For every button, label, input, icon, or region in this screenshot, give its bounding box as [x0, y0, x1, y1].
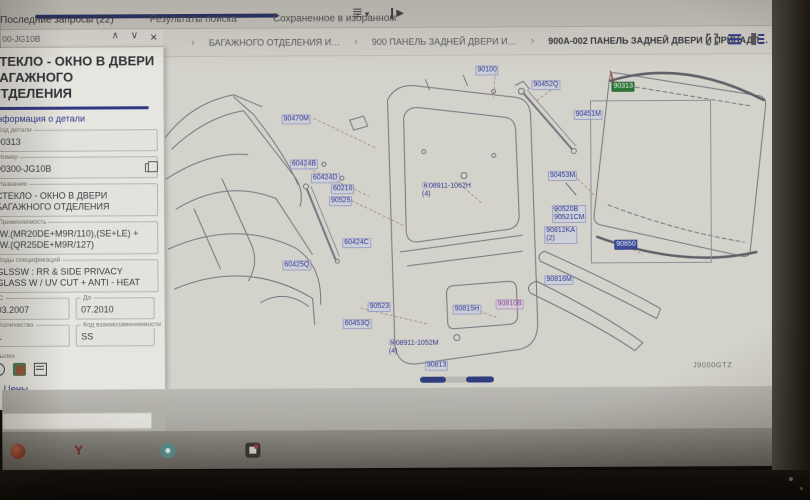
- part-label[interactable]: 90313: [611, 82, 635, 92]
- part-field: Код детали 90313: [0, 129, 158, 152]
- part-title: СТЕКЛО - ОКНО В ДВЕРИ БАГАЖНОГО ОТДЕЛЕНИ…: [0, 53, 158, 102]
- part-fields: Код детали 90313 Номер 90300-JG10B Назва…: [0, 129, 159, 347]
- list-icon[interactable]: [34, 363, 47, 376]
- copy-icon[interactable]: [145, 163, 153, 172]
- list-view-icon[interactable]: [728, 33, 741, 45]
- messenger-icon[interactable]: [160, 443, 175, 458]
- tab[interactable]: Результаты поиска: [138, 14, 261, 26]
- fit-screen-icon[interactable]: [706, 33, 718, 45]
- next-part-button[interactable]: ∨: [131, 30, 138, 44]
- breadcrumb: ›БАГАЖНОГО ОТДЕЛЕНИЯ И…›900 ПАНЕЛЬ ЗАДНЕ…: [163, 33, 768, 48]
- browser-icon[interactable]: [10, 444, 25, 459]
- part-label[interactable]: 60453Q: [343, 319, 372, 329]
- part-label[interactable]: Ⓝ08911-1052M(4): [387, 339, 441, 357]
- browser-tab-bar: Последние запросы (22)Результаты поискаС…: [0, 0, 772, 30]
- part-field: Применяемость *W.(MR20DE+M9R/110),(SE+LE…: [0, 221, 158, 255]
- part-field: Номер 90300-JG10B: [0, 156, 158, 179]
- part-label[interactable]: 90470M: [282, 114, 311, 124]
- part-field: Количество 1: [0, 325, 70, 347]
- tab-part-info[interactable]: Информация о детали: [0, 113, 158, 124]
- photo-of-laptop-screen: Последние запросы (22)Результаты поискаС…: [0, 0, 810, 500]
- compass-icon[interactable]: [0, 363, 5, 376]
- title-underline: [0, 106, 149, 110]
- part-label[interactable]: 60210: [331, 184, 355, 194]
- part-label[interactable]: 90813: [425, 361, 449, 371]
- part-label[interactable]: 90100: [475, 65, 499, 75]
- horizontal-scrollbar[interactable]: [420, 376, 494, 382]
- yandex-icon[interactable]: Y: [74, 443, 83, 458]
- expand-panel-button[interactable]: ▶: [391, 7, 404, 18]
- part-label[interactable]: 90810B: [496, 299, 524, 309]
- part-label[interactable]: 90850: [614, 240, 638, 250]
- part-field: До 07.2010: [76, 297, 155, 319]
- tab[interactable]: Последние запросы (22): [0, 14, 138, 26]
- part-label[interactable]: 90816M: [544, 275, 573, 285]
- part-label[interactable]: 90815H: [453, 304, 482, 314]
- bezel-dot: [800, 487, 803, 490]
- list-icon: ≣: [352, 5, 363, 20]
- part-label[interactable]: 90520B90521CM: [552, 205, 586, 223]
- part-field: Название СТЕКЛО - ОКНО В ДВЕРИ БАГАЖНОГО…: [0, 183, 158, 217]
- part-code-fragment: 00-JG10B: [2, 34, 40, 44]
- laptop-bezel-right: [772, 0, 810, 470]
- prev-part-button[interactable]: ∧: [111, 30, 118, 44]
- part-label[interactable]: 90812KA(2): [544, 226, 577, 244]
- bottom-input-box[interactable]: [2, 412, 152, 430]
- settings-icon[interactable]: [245, 443, 260, 458]
- part-field: Код взаимозаменяемости SS: [76, 324, 155, 346]
- links-label: Ссылки: [0, 352, 159, 360]
- breadcrumb-bar: ›БАГАЖНОГО ОТДЕЛЕНИЯ И…›900 ПАНЕЛЬ ЗАДНЕ…: [163, 26, 772, 57]
- part-label[interactable]: 90451M: [574, 110, 603, 120]
- part-label[interactable]: 60425Q: [282, 260, 311, 270]
- drawing-code: J9000GTZ: [693, 360, 732, 369]
- close-button[interactable]: ×: [150, 30, 157, 44]
- part-label[interactable]: Ⓝ08911-1062H(4): [420, 182, 473, 200]
- os-taskbar: Y: [2, 428, 774, 470]
- part-label[interactable]: 90523: [368, 302, 392, 312]
- breadcrumb-item[interactable]: ›БАГАЖНОГО ОТДЕЛЕНИЯ И…: [177, 36, 340, 49]
- part-label[interactable]: 90453M: [548, 171, 577, 181]
- parts-diagram[interactable]: 90470M60424B60424D602109052560424C60425Q…: [163, 54, 774, 389]
- diagram-line-art: [163, 54, 774, 389]
- screen-content: Последние запросы (22)Результаты поискаС…: [0, 0, 774, 470]
- part-label[interactable]: 90452Q: [531, 80, 560, 90]
- part-label[interactable]: 60424D: [311, 173, 340, 183]
- breadcrumb-item[interactable]: ›900 ПАНЕЛЬ ЗАДНЕЙ ДВЕРИ И…: [340, 35, 516, 48]
- chevron-right-icon: ›: [191, 36, 195, 48]
- bezel-dot: [789, 477, 793, 481]
- part-field: С 03.2007: [0, 298, 70, 320]
- split-view-icon[interactable]: [751, 33, 764, 45]
- chevron-right-icon: ›: [354, 36, 358, 48]
- chevron-right-icon: ›: [531, 35, 535, 47]
- part-label[interactable]: 60424C: [342, 238, 371, 248]
- part-field: Коды спецификаций GLSSW : RR & SIDE PRIV…: [0, 259, 159, 293]
- part-label[interactable]: 90525: [329, 196, 353, 206]
- layers-icon[interactable]: [13, 363, 26, 376]
- caret-down-icon: ▾: [365, 9, 370, 19]
- part-navigator-bar: 00-JG10B ∧ ∨ ×: [0, 29, 163, 48]
- laptop-bezel-bottom: [0, 470, 810, 500]
- part-label[interactable]: 60424B: [290, 159, 318, 169]
- list-menu-button[interactable]: ≣▾: [352, 4, 370, 22]
- part-info-panel: СТЕКЛО - ОКНО В ДВЕРИ БАГАЖНОГО ОТДЕЛЕНИ…: [0, 47, 166, 410]
